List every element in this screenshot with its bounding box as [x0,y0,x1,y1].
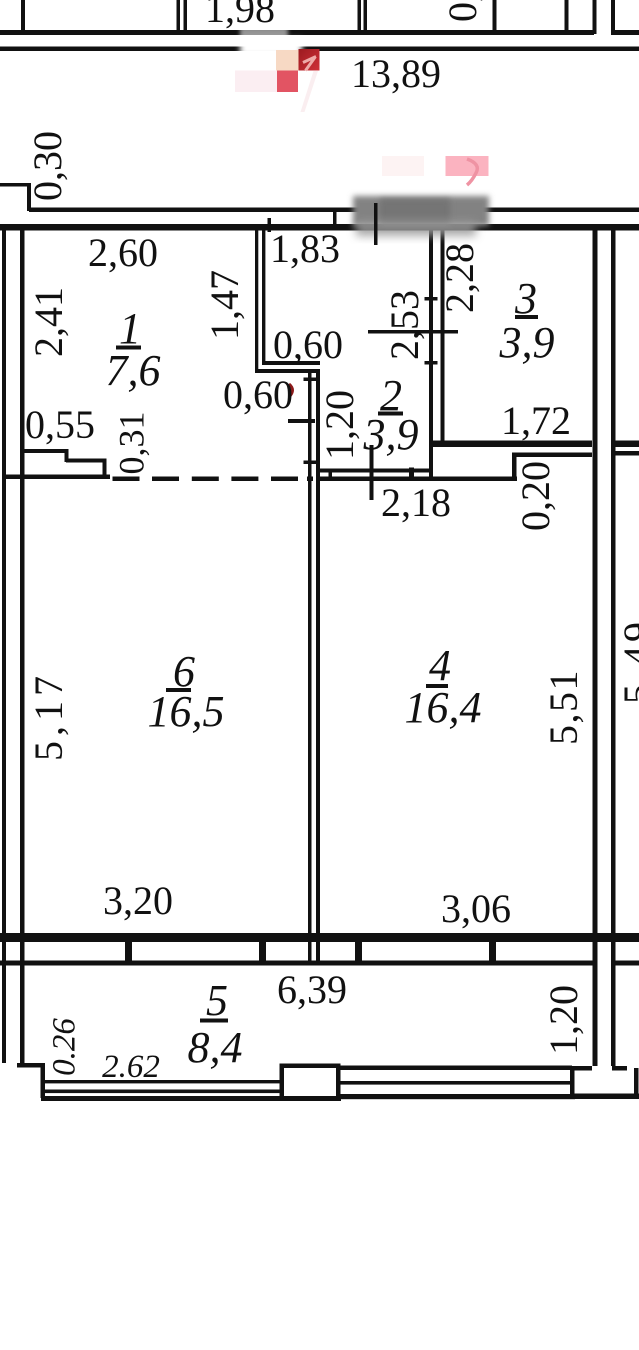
svg-text:0,55: 0,55 [25,402,95,447]
svg-text:13,89: 13,89 [351,51,441,96]
svg-text:1,47: 1,47 [202,270,247,340]
svg-text:2.62: 2.62 [102,1049,160,1085]
svg-text:5: 5 [206,976,228,1025]
svg-text:7,6: 7,6 [106,346,161,395]
svg-text:3,06: 3,06 [441,886,511,931]
svg-text:2,60: 2,60 [88,230,158,275]
svg-text:1,98: 1,98 [205,0,275,31]
svg-text:0,60: 0,60 [273,322,343,367]
svg-text:2,18: 2,18 [381,480,451,525]
svg-text:0.26: 0.26 [46,1018,82,1076]
svg-text:0,60: 0,60 [223,372,293,417]
svg-text:3,9: 3,9 [499,318,555,367]
svg-text:3,9: 3,9 [363,410,419,459]
svg-text:5,49: 5,49 [615,618,639,704]
svg-text:1,20: 1,20 [317,390,362,460]
svg-text:16,5: 16,5 [148,687,225,736]
svg-text:2,28: 2,28 [437,243,482,313]
svg-text:8,4: 8,4 [188,1023,243,1072]
svg-text:1,20: 1,20 [541,985,586,1055]
svg-text:3,20: 3,20 [103,878,173,923]
svg-text:2,53: 2,53 [382,290,427,360]
svg-text:0,31: 0,31 [111,412,151,475]
svg-text:1,72: 1,72 [501,398,571,443]
svg-text:0,20: 0,20 [513,461,558,531]
svg-text:0,30: 0,30 [25,131,70,201]
svg-text:6,39: 6,39 [277,967,347,1012]
svg-text:1,83: 1,83 [270,226,340,271]
svg-text:5,17: 5,17 [26,671,71,761]
svg-text:0,44: 0,44 [440,0,485,22]
svg-text:2,41: 2,41 [26,287,71,357]
svg-text:5,51: 5,51 [541,669,586,745]
svg-text:16,4: 16,4 [405,683,482,732]
